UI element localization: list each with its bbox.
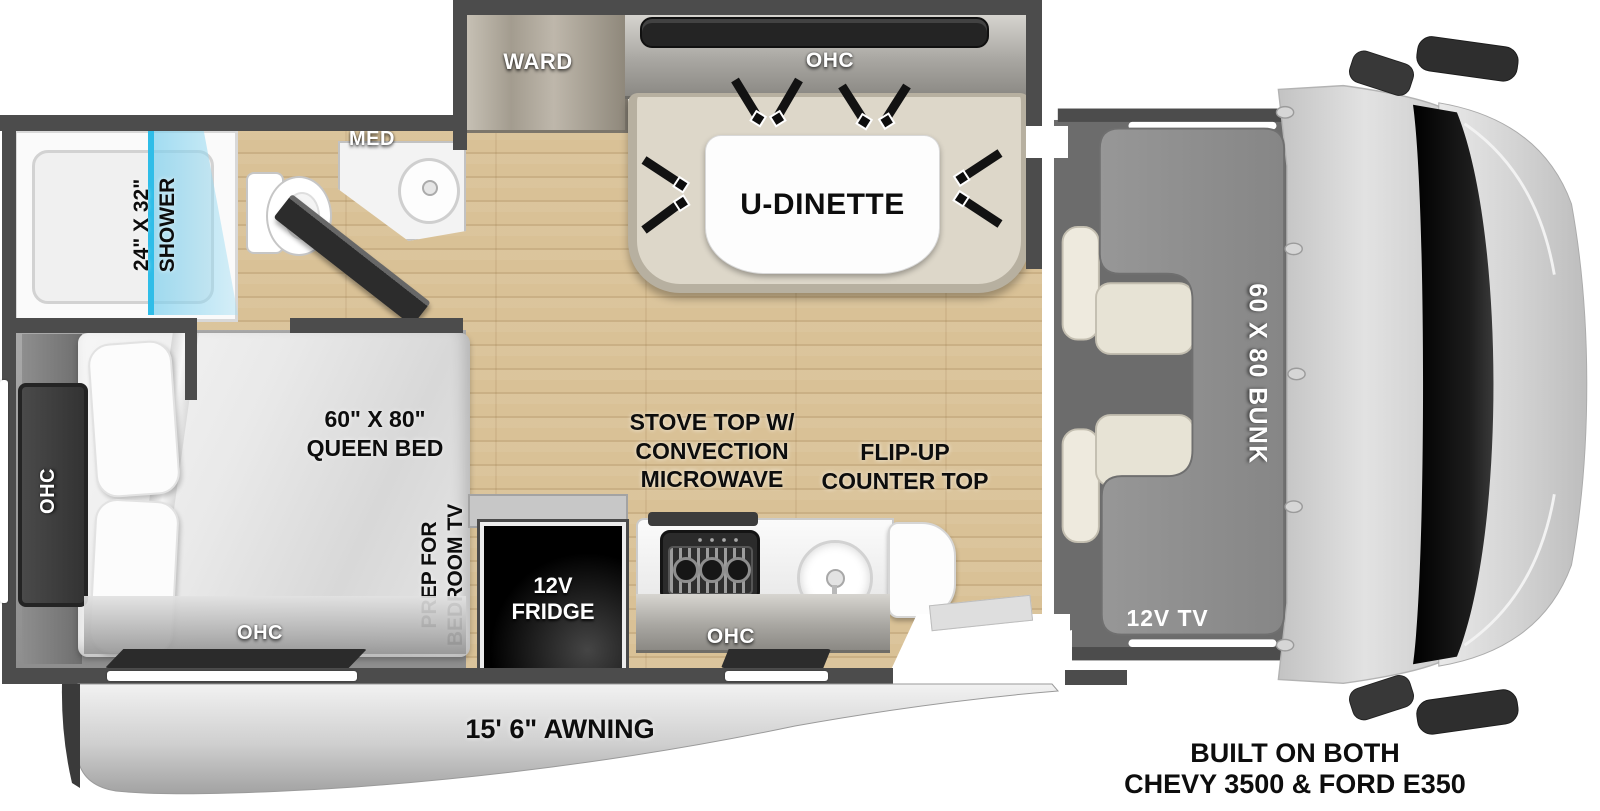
- wall-ward-left: [453, 0, 467, 150]
- cab-door-seam-bottom: [1128, 639, 1276, 647]
- stove-burner-center: [699, 557, 725, 583]
- window-strip-left: [0, 380, 8, 603]
- kitchen-window-shelf: [721, 649, 831, 668]
- cab-vehicle-front: 60 X 80 BUNK 12V TV: [1015, 35, 1600, 775]
- wall-bed-bath-a: [2, 318, 195, 333]
- fridge-label-line2: FRIDGE: [511, 599, 594, 625]
- stove-text-label: STOVE TOP W/ CONVECTION MICROWAVE: [612, 406, 812, 496]
- cab-bottom-wall: [1058, 647, 1283, 660]
- seatbelt-buckles: [674, 111, 970, 211]
- bed-pillow-top: [87, 339, 182, 498]
- awning-label: 15' 6" AWNING: [432, 712, 688, 746]
- wall-bed-bath-b: [290, 318, 463, 333]
- bedroom-ohc-foot-label: OHC: [212, 620, 308, 646]
- stove-back-panel: [648, 512, 758, 526]
- stove-knobs: [695, 537, 743, 544]
- stove-burner-right: [725, 557, 751, 583]
- stove-top: [660, 530, 760, 602]
- wall-bed-bath-stub: [185, 318, 197, 400]
- queen-bed-label: 60" X 80" QUEEN BED: [260, 404, 490, 464]
- stove-line1: STOVE TOP W/: [630, 408, 795, 437]
- flip-up-counter-label: FLIP-UP COUNTER TOP: [808, 438, 1002, 496]
- wall-right-lower: [1026, 157, 1042, 269]
- dinette-window: [640, 17, 989, 48]
- rv-floorplan: 60 X 80 BUNK 12V TV WARD OHC U-DINETTE: [0, 0, 1600, 811]
- chassis-line1: BUILT ON BOTH: [1190, 738, 1399, 769]
- side-mirror-bottom: [1347, 672, 1520, 736]
- bed-size-text: 60" X 80": [324, 405, 425, 434]
- awning-text: 15' 6" AWNING: [465, 714, 654, 745]
- cab-top-wall: [1058, 109, 1283, 122]
- bedroom-tv-shelf: [105, 649, 367, 668]
- side-mirror-top: [1347, 35, 1520, 98]
- chassis-line2: CHEVY 3500 & FORD E350: [1124, 769, 1466, 800]
- dinette-seatbelts: [600, 60, 1040, 250]
- flip-line2: COUNTER TOP: [822, 467, 989, 496]
- bathroom-faucet: [422, 180, 438, 196]
- fridge-label-line1: 12V: [533, 573, 572, 599]
- wardrobe-label: WARD: [490, 49, 586, 75]
- stove-burner-left: [673, 557, 699, 583]
- bed-name-text: QUEEN BED: [307, 434, 444, 463]
- shower-label: 24" X 32" SHOWER: [126, 150, 184, 300]
- stove-line3: MICROWAVE: [641, 465, 784, 494]
- shower-size-text: 24" X 32": [129, 179, 155, 271]
- flip-line1: FLIP-UP: [860, 438, 949, 467]
- stove-line2: CONVECTION: [635, 437, 788, 466]
- cab-tv-label: 12V TV: [1127, 605, 1209, 631]
- cab-entry-notch-top: [1026, 126, 1068, 158]
- kitchen-ohc-label: OHC: [683, 624, 779, 650]
- wall-top-main: [453, 0, 1042, 15]
- bunk-label: 60 X 80 BUNK: [1244, 283, 1271, 464]
- chassis-note: BUILT ON BOTH CHEVY 3500 & FORD E350: [1105, 737, 1485, 801]
- wall-bathroom-top: [0, 115, 467, 131]
- wall-right-upper: [1026, 15, 1042, 130]
- awning-left-cap: [62, 684, 80, 788]
- fridge: 12V FRIDGE: [480, 522, 626, 676]
- bedroom-ohc-left-label: OHC: [35, 451, 61, 531]
- shower-text: SHOWER: [155, 178, 181, 273]
